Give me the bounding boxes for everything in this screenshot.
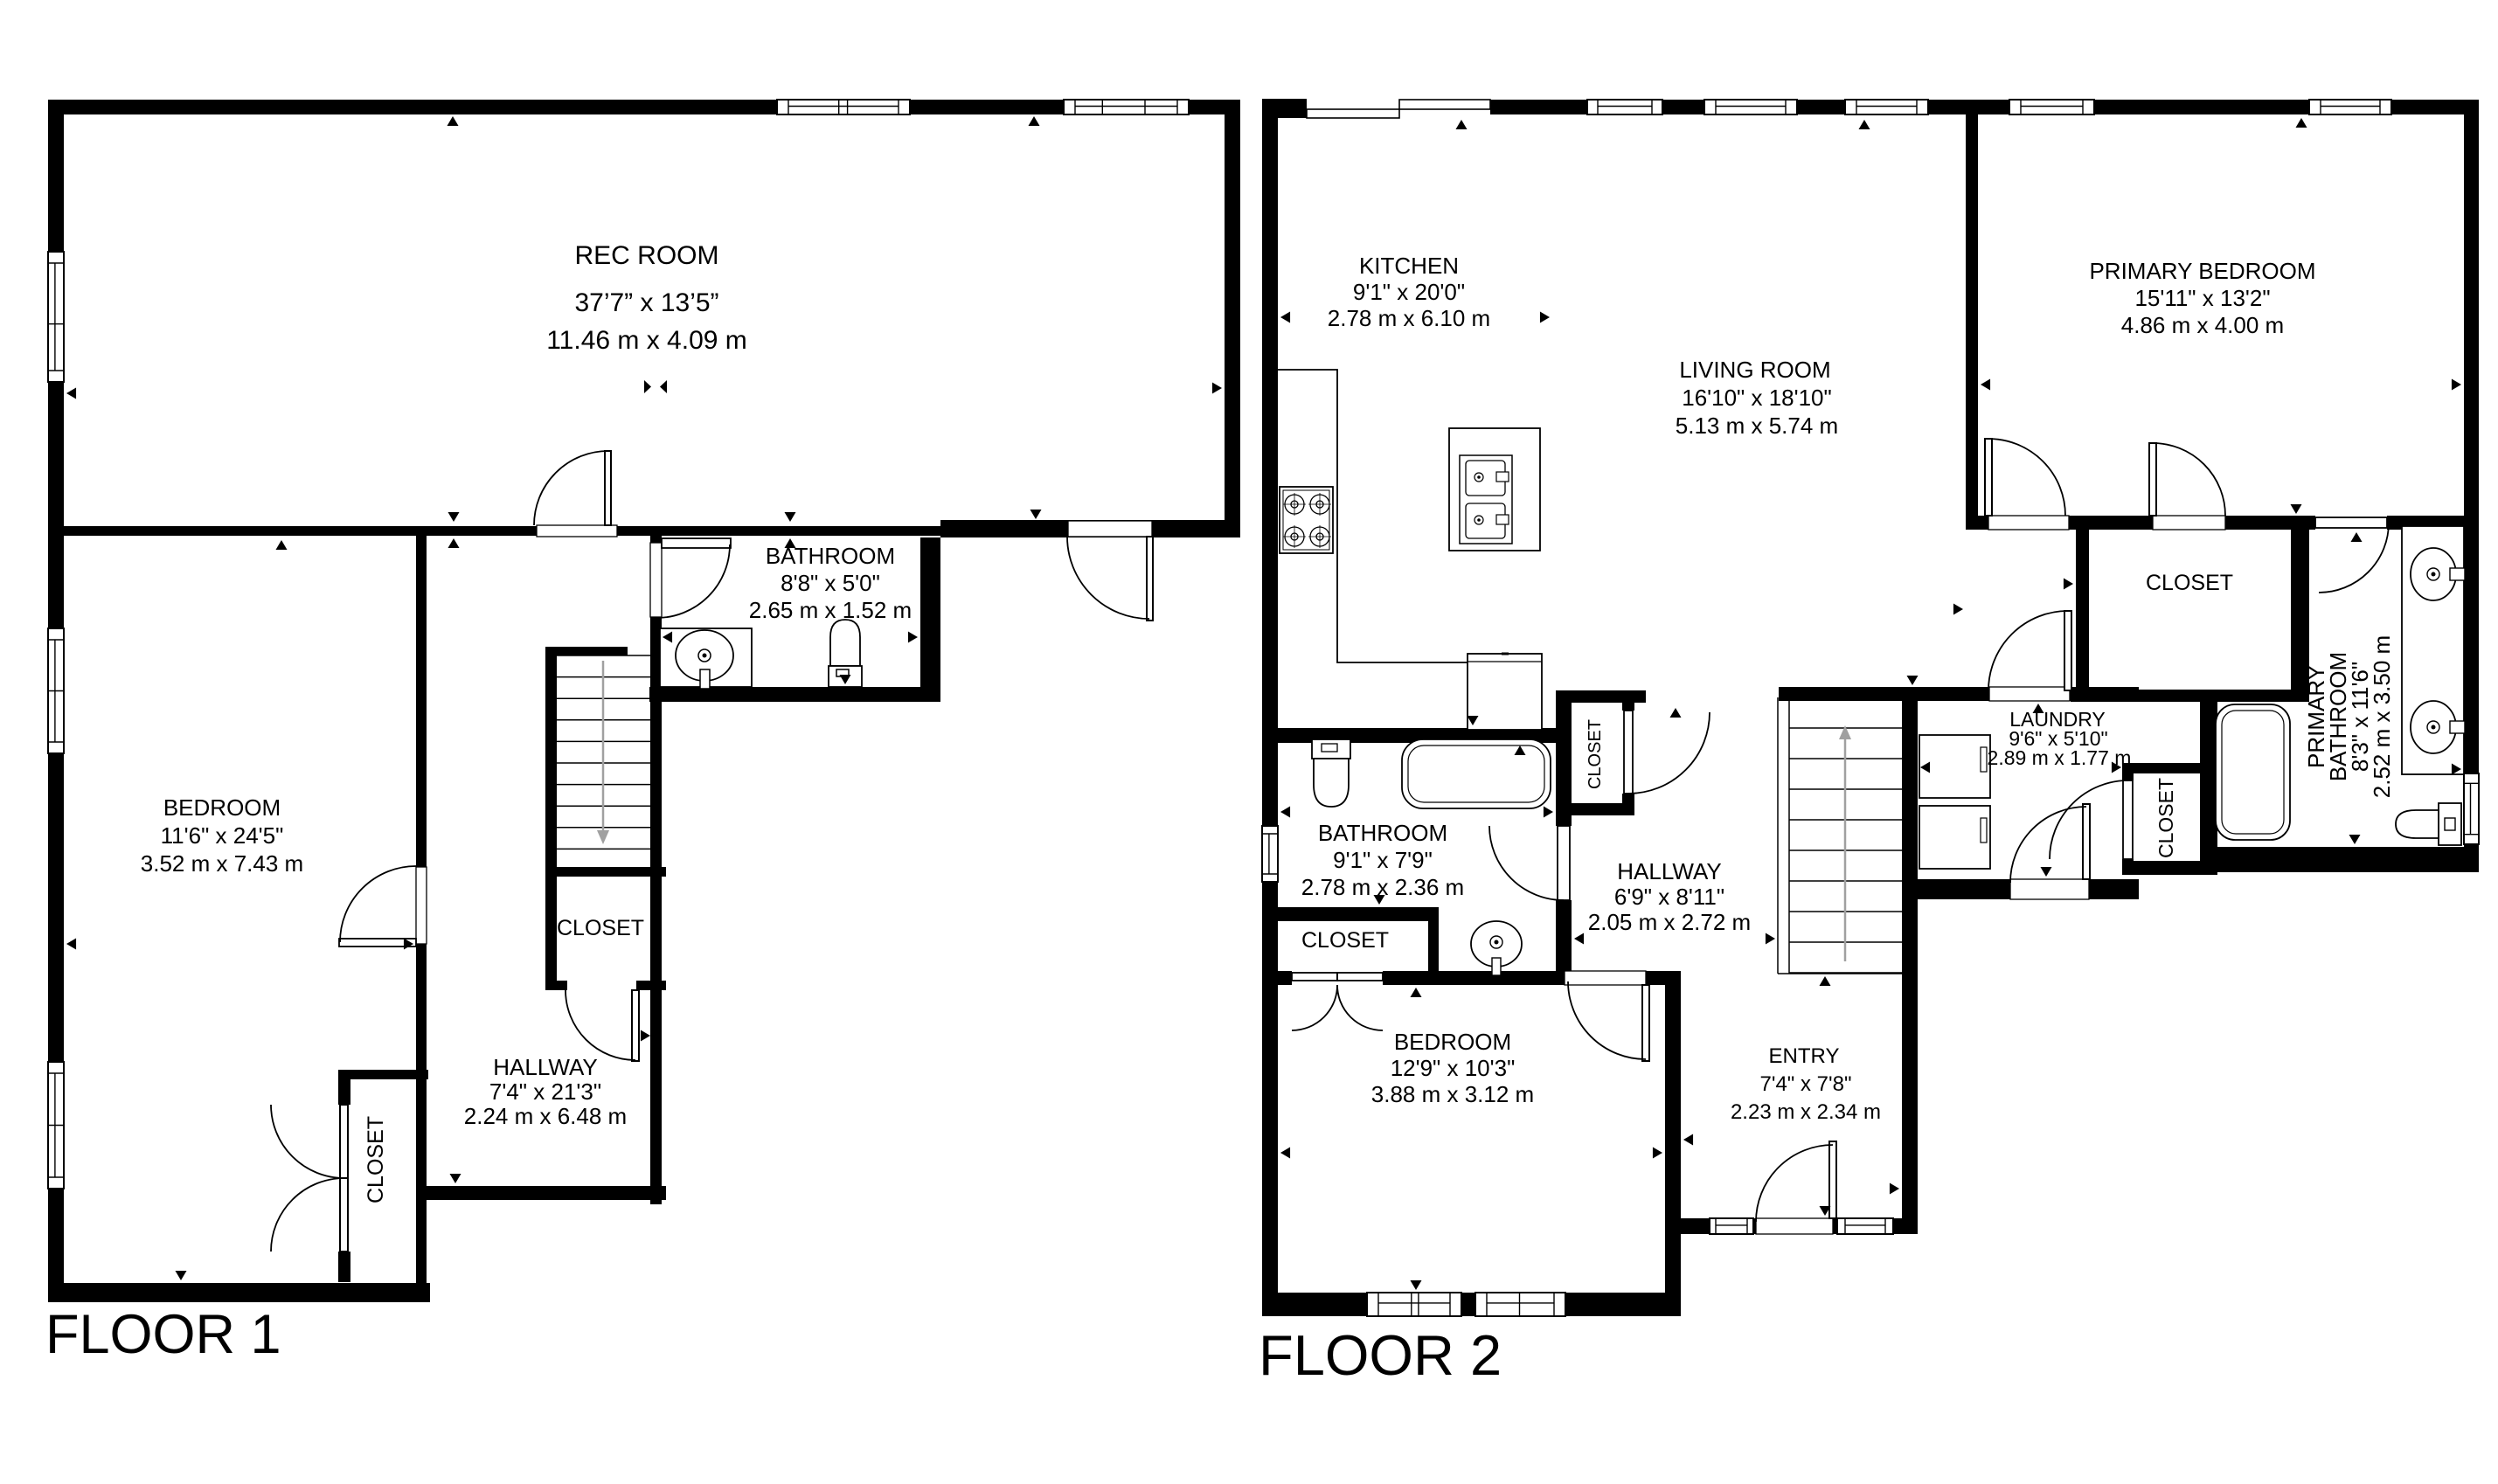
svg-text:2.23 m x 2.34 m: 2.23 m x 2.34 m	[1731, 1100, 1881, 1124]
svg-text:7'4" x 21'3": 7'4" x 21'3"	[489, 1078, 601, 1105]
svg-text:KITCHEN: KITCHEN	[1359, 253, 1459, 279]
svg-text:5.13 m x 5.74 m: 5.13 m x 5.74 m	[1676, 413, 1838, 439]
svg-text:PRIMARY BEDROOM: PRIMARY BEDROOM	[2089, 258, 2315, 284]
svg-text:CLOSET: CLOSET	[364, 1116, 388, 1203]
svg-text:REC ROOM: REC ROOM	[575, 241, 719, 270]
svg-text:CLOSET: CLOSET	[557, 916, 644, 940]
svg-text:2.05 m x 2.72 m: 2.05 m x 2.72 m	[1588, 909, 1751, 935]
svg-text:3.88 m x 3.12 m: 3.88 m x 3.12 m	[1371, 1081, 1534, 1107]
svg-text:9'1" x 7'9": 9'1" x 7'9"	[1333, 847, 1433, 873]
svg-text:FLOOR 2: FLOOR 2	[1259, 1323, 1502, 1387]
svg-text:3.52 m x 7.43 m: 3.52 m x 7.43 m	[141, 850, 303, 877]
svg-text:CLOSET: CLOSET	[1301, 928, 1389, 953]
svg-text:BEDROOM: BEDROOM	[1394, 1029, 1511, 1055]
svg-text:2.65 m x 1.52 m: 2.65 m x 1.52 m	[749, 597, 912, 623]
svg-text:2.78 m x 6.10 m: 2.78 m x 6.10 m	[1328, 305, 1490, 331]
svg-text:12'9" x 10'3": 12'9" x 10'3"	[1391, 1055, 1516, 1081]
svg-text:11'6" x 24'5": 11'6" x 24'5"	[161, 822, 284, 849]
svg-text:11.46 m x 4.09 m: 11.46 m x 4.09 m	[546, 326, 747, 355]
svg-text:16'10" x 18'10": 16'10" x 18'10"	[1682, 385, 1832, 411]
svg-text:HALLWAY: HALLWAY	[1617, 858, 1721, 884]
svg-text:FLOOR 1: FLOOR 1	[45, 1304, 281, 1365]
svg-text:LIVING ROOM: LIVING ROOM	[1679, 357, 1830, 383]
svg-text:BATHROOM: BATHROOM	[766, 543, 895, 569]
svg-text:15'11" x 13'2": 15'11" x 13'2"	[2134, 285, 2270, 311]
svg-text:8'8" x 5'0": 8'8" x 5'0"	[781, 570, 880, 596]
svg-text:7'4" x 7'8": 7'4" x 7'8"	[1760, 1072, 1852, 1096]
svg-text:BEDROOM: BEDROOM	[163, 794, 281, 821]
svg-text:2.52 m x 3.50 m: 2.52 m x 3.50 m	[2369, 635, 2395, 798]
svg-text:ENTRY: ENTRY	[1769, 1044, 1840, 1068]
svg-text:6'9" x 8'11": 6'9" x 8'11"	[1614, 884, 1724, 910]
svg-text:CLOSET: CLOSET	[1586, 719, 1605, 789]
svg-text:37’7” x 13’5”: 37’7” x 13’5”	[574, 288, 718, 317]
svg-text:CLOSET: CLOSET	[2155, 778, 2177, 858]
svg-text:BATHROOM: BATHROOM	[1318, 820, 1447, 846]
svg-text:2.24 m x 6.48 m: 2.24 m x 6.48 m	[464, 1103, 627, 1129]
svg-text:HALLWAY: HALLWAY	[493, 1054, 597, 1080]
svg-text:4.86 m x 4.00 m: 4.86 m x 4.00 m	[2121, 312, 2284, 338]
svg-text:9'1" x 20'0": 9'1" x 20'0"	[1353, 279, 1465, 305]
svg-text:2.89 m x 1.77 m: 2.89 m x 1.77 m	[1988, 746, 2132, 769]
svg-text:CLOSET: CLOSET	[2146, 571, 2233, 595]
